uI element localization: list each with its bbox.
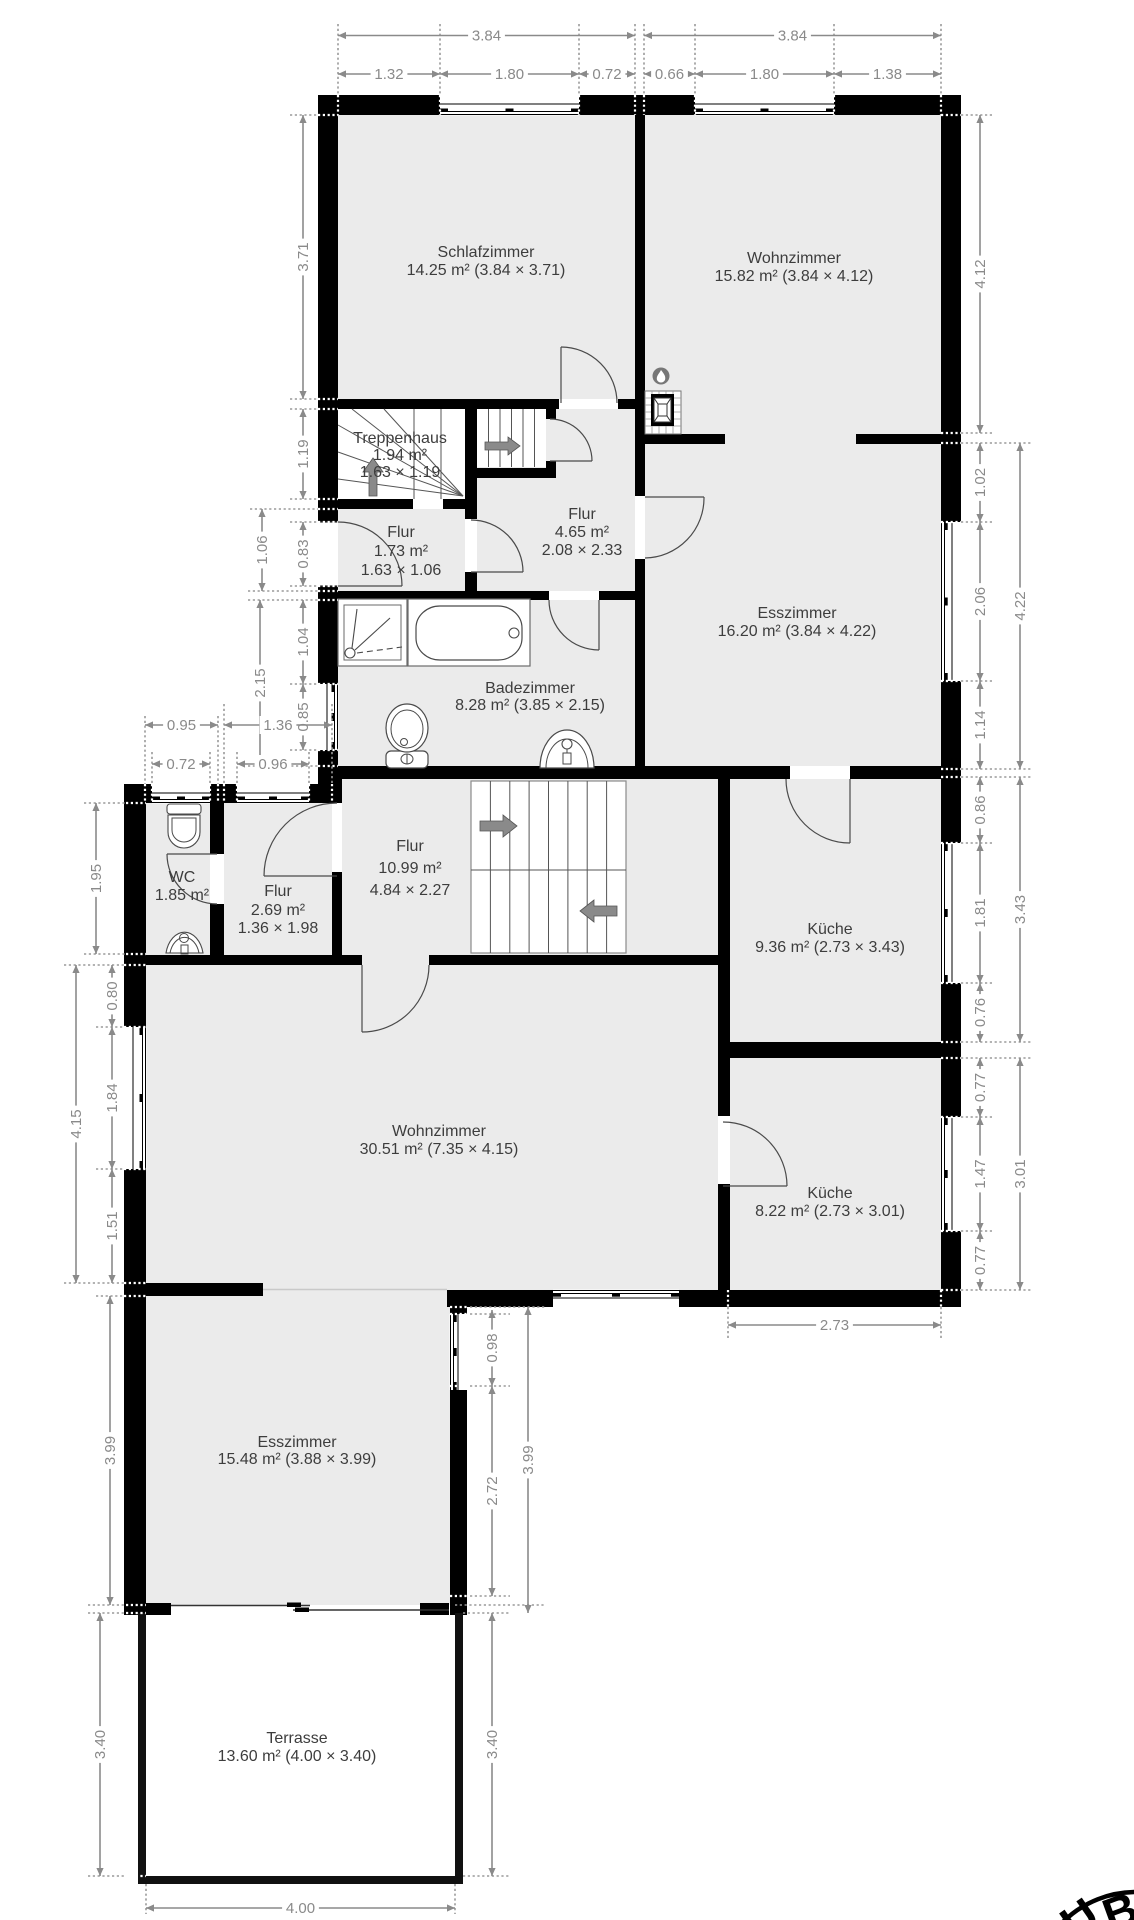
- svg-text:1.02: 1.02: [972, 468, 989, 497]
- svg-text:1.94 m²: 1.94 m²: [373, 447, 428, 464]
- svg-text:2.69 m²: 2.69 m²: [251, 902, 306, 919]
- svg-text:1.38: 1.38: [873, 66, 902, 83]
- svg-text:1.51: 1.51: [104, 1211, 121, 1240]
- svg-text:0.76: 0.76: [972, 998, 989, 1027]
- svg-text:1.06: 1.06: [254, 535, 271, 564]
- svg-text:1.80: 1.80: [495, 66, 524, 83]
- svg-text:1.36: 1.36: [263, 717, 292, 734]
- svg-text:9.36 m² (2.73 × 3.43): 9.36 m² (2.73 × 3.43): [755, 939, 905, 956]
- svg-text:Terrasse: Terrasse: [266, 1730, 327, 1747]
- svg-text:3.40: 3.40: [92, 1730, 109, 1759]
- svg-text:WC: WC: [169, 869, 196, 886]
- svg-text:3.71: 3.71: [295, 242, 312, 271]
- svg-text:Treppenhaus: Treppenhaus: [353, 430, 447, 447]
- svg-text:14.25 m² (3.84 × 3.71): 14.25 m² (3.84 × 3.71): [407, 262, 566, 279]
- svg-text:0.66: 0.66: [655, 66, 684, 83]
- svg-text:30.51 m² (7.35 × 4.15): 30.51 m² (7.35 × 4.15): [360, 1141, 519, 1158]
- svg-text:2.73: 2.73: [820, 1317, 849, 1334]
- svg-text:4.22: 4.22: [1012, 591, 1029, 620]
- svg-text:Schlafzimmer: Schlafzimmer: [438, 244, 536, 261]
- svg-text:13.60 m² (4.00 × 3.40): 13.60 m² (4.00 × 3.40): [218, 1748, 377, 1765]
- svg-text:3.40: 3.40: [484, 1730, 501, 1759]
- svg-text:3.43: 3.43: [1012, 895, 1029, 924]
- svg-text:Flur: Flur: [396, 838, 424, 855]
- svg-text:1.81: 1.81: [972, 898, 989, 927]
- svg-text:1.04: 1.04: [295, 627, 312, 656]
- svg-text:1.80: 1.80: [750, 66, 779, 83]
- svg-text:3.84: 3.84: [472, 28, 501, 45]
- svg-text:4.00: 4.00: [286, 1900, 315, 1917]
- svg-text:0.98: 0.98: [484, 1333, 501, 1362]
- svg-text:1.63 × 1.06: 1.63 × 1.06: [361, 562, 442, 579]
- svg-text:0.77: 0.77: [972, 1073, 989, 1102]
- svg-text:4.15: 4.15: [68, 1109, 85, 1138]
- svg-text:0.83: 0.83: [295, 539, 312, 568]
- svg-text:4.65 m²: 4.65 m²: [555, 524, 610, 541]
- svg-text:0.95: 0.95: [167, 717, 196, 734]
- svg-text:Flur: Flur: [568, 506, 596, 523]
- svg-text:0.72: 0.72: [166, 756, 195, 773]
- svg-text:Esszimmer: Esszimmer: [257, 1434, 337, 1451]
- svg-text:4.12: 4.12: [972, 259, 989, 288]
- svg-text:3.99: 3.99: [520, 1445, 537, 1474]
- svg-text:0.96: 0.96: [258, 756, 287, 773]
- svg-text:1.73 m²: 1.73 m²: [374, 543, 429, 560]
- svg-text:Badezimmer: Badezimmer: [485, 680, 575, 697]
- svg-text:8.28 m² (3.85 × 2.15): 8.28 m² (3.85 × 2.15): [455, 697, 605, 714]
- svg-text:Wohnzimmer: Wohnzimmer: [747, 250, 842, 267]
- svg-text:0.86: 0.86: [972, 795, 989, 824]
- svg-text:Flur: Flur: [387, 524, 415, 541]
- svg-text:1.47: 1.47: [972, 1159, 989, 1188]
- svg-text:15.82 m² (3.84 × 4.12): 15.82 m² (3.84 × 4.12): [715, 268, 874, 285]
- svg-text:1.63 × 1.19: 1.63 × 1.19: [360, 464, 441, 481]
- svg-text:0.72: 0.72: [592, 66, 621, 83]
- svg-text:3.84: 3.84: [778, 28, 807, 45]
- svg-text:1.32: 1.32: [374, 66, 403, 83]
- svg-text:1.19: 1.19: [295, 439, 312, 468]
- svg-text:Flur: Flur: [264, 883, 292, 900]
- svg-text:1.84: 1.84: [104, 1083, 121, 1112]
- svg-text:3.99: 3.99: [102, 1436, 119, 1465]
- svg-text:4.84 × 2.27: 4.84 × 2.27: [370, 882, 451, 899]
- svg-text:Wohnzimmer: Wohnzimmer: [392, 1123, 487, 1140]
- svg-text:Esszimmer: Esszimmer: [757, 605, 837, 622]
- svg-text:2.08 × 2.33: 2.08 × 2.33: [542, 542, 623, 559]
- svg-text:0.80: 0.80: [104, 981, 121, 1010]
- svg-text:2.15: 2.15: [252, 668, 269, 697]
- svg-text:10.99 m²: 10.99 m²: [378, 860, 442, 877]
- svg-text:3.01: 3.01: [1012, 1159, 1029, 1188]
- svg-text:Küche: Küche: [807, 921, 852, 938]
- svg-text:1.85 m²: 1.85 m²: [155, 887, 210, 904]
- svg-text:1.36 × 1.98: 1.36 × 1.98: [238, 920, 319, 937]
- svg-text:1.14: 1.14: [972, 710, 989, 739]
- svg-text:1.95: 1.95: [88, 864, 105, 893]
- svg-text:8.22 m² (2.73 × 3.01): 8.22 m² (2.73 × 3.01): [755, 1203, 905, 1220]
- svg-text:15.48 m² (3.88 × 3.99): 15.48 m² (3.88 × 3.99): [218, 1451, 377, 1468]
- svg-text:Küche: Küche: [807, 1185, 852, 1202]
- svg-text:2.72: 2.72: [484, 1476, 501, 1505]
- svg-text:2.06: 2.06: [972, 587, 989, 616]
- svg-text:0.85: 0.85: [295, 702, 312, 731]
- svg-text:16.20 m² (3.84 × 4.22): 16.20 m² (3.84 × 4.22): [718, 623, 877, 640]
- svg-text:0.77: 0.77: [972, 1246, 989, 1275]
